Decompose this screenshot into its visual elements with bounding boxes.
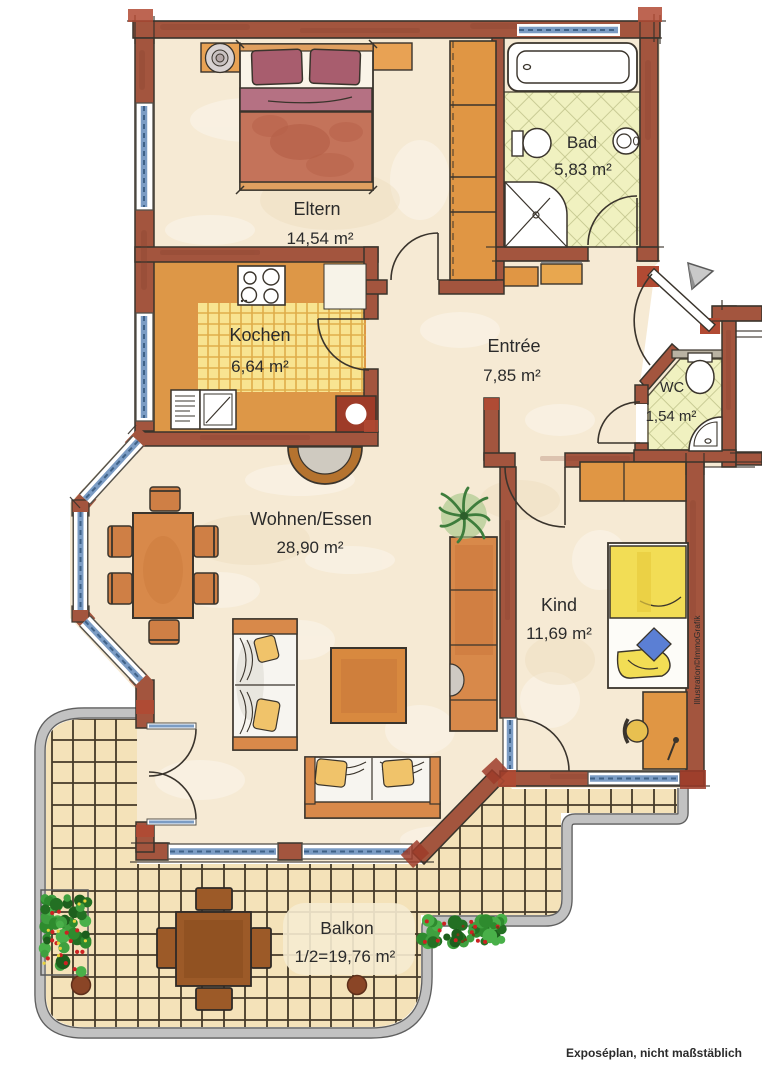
svg-text:14,54 m²: 14,54 m²: [286, 229, 353, 248]
svg-text:Kochen: Kochen: [229, 325, 290, 345]
svg-text:Bad: Bad: [567, 133, 597, 152]
svg-text:28,90 m²: 28,90 m²: [276, 538, 343, 557]
svg-text:WC: WC: [660, 380, 684, 396]
svg-text:5,83 m²: 5,83 m²: [554, 160, 612, 179]
svg-text:Entrée: Entrée: [487, 336, 540, 356]
svg-text:11,69 m²: 11,69 m²: [526, 624, 592, 643]
svg-text:Eltern: Eltern: [293, 199, 340, 219]
svg-text:Kind: Kind: [541, 595, 577, 615]
svg-text:7,85 m²: 7,85 m²: [483, 366, 541, 385]
svg-text:6,64 m²: 6,64 m²: [231, 357, 289, 376]
svg-text:Exposéplan, nicht maßstäblich: Exposéplan, nicht maßstäblich: [566, 1046, 742, 1060]
svg-text:Illustration©ImmoGrafik: Illustration©ImmoGrafik: [692, 615, 702, 705]
svg-text:1,54 m²: 1,54 m²: [646, 408, 697, 425]
svg-text:Wohnen/Essen: Wohnen/Essen: [250, 509, 372, 529]
svg-text:Balkon: Balkon: [320, 918, 374, 938]
svg-text:1/2=19,76 m²: 1/2=19,76 m²: [295, 947, 396, 966]
